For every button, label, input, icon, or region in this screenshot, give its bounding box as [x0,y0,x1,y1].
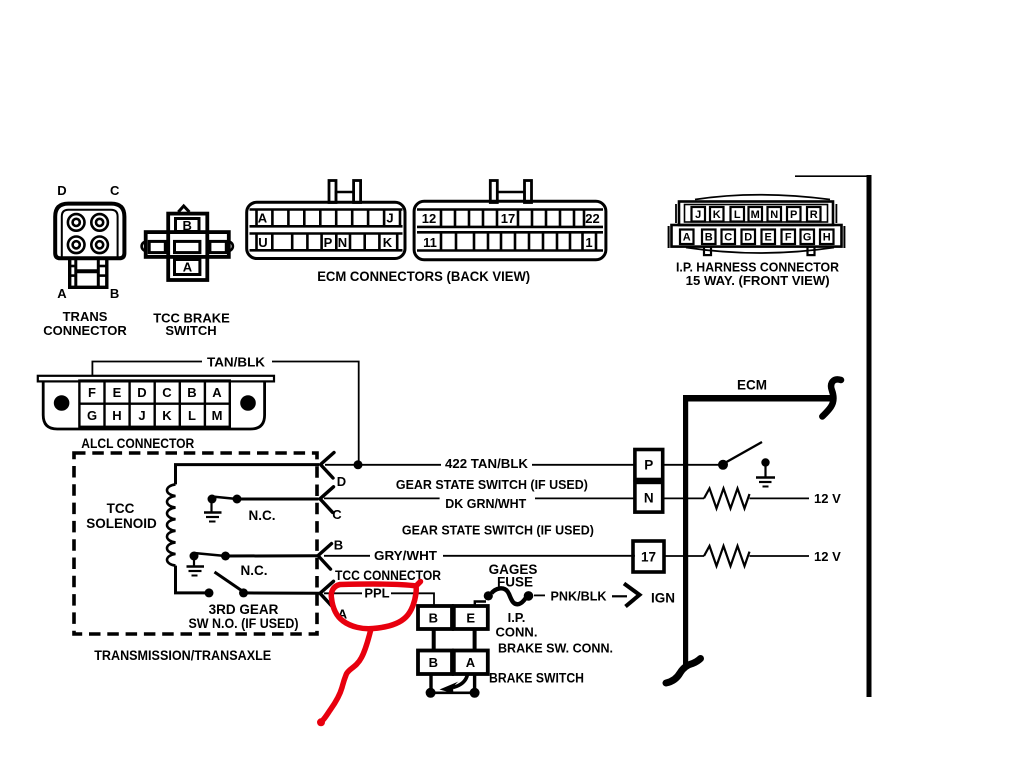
svg-text:BRAKE SWITCH: BRAKE SWITCH [489,670,584,685]
svg-text:12: 12 [422,211,436,226]
svg-text:TRANS: TRANS [63,309,108,324]
svg-text:A: A [57,286,67,301]
svg-text:M: M [751,209,760,221]
svg-text:D: D [137,385,146,400]
svg-text:GEAR STATE SWITCH (IF USED): GEAR STATE SWITCH (IF USED) [396,477,588,492]
svg-text:N: N [770,209,778,221]
svg-text:R: R [810,209,818,221]
svg-text:J: J [138,408,145,423]
svg-text:I.P.: I.P. [508,610,526,625]
svg-text:TCC CONNECTOR: TCC CONNECTOR [335,568,441,583]
svg-text:K: K [162,408,172,423]
svg-text:D: D [744,232,752,244]
svg-text:GRY/WHT: GRY/WHT [374,548,437,563]
svg-text:IGN: IGN [651,590,675,605]
svg-text:D: D [337,474,346,489]
svg-text:F: F [785,232,792,244]
svg-text:M: M [212,408,223,423]
svg-text:12 V: 12 V [814,549,841,564]
svg-text:B: B [429,611,438,626]
svg-text:B: B [429,655,438,670]
svg-text:C: C [724,232,732,244]
svg-text:K: K [383,235,393,250]
svg-text:C: C [332,507,342,522]
svg-text:B: B [110,286,119,301]
svg-text:3RD GEAR: 3RD GEAR [209,602,279,617]
svg-text:J: J [695,209,701,221]
svg-text:15 WAY. (FRONT VIEW): 15 WAY. (FRONT VIEW) [686,273,830,288]
svg-text:A: A [683,232,691,244]
svg-text:17: 17 [641,550,656,565]
svg-text:CONN.: CONN. [496,624,538,639]
svg-text:11: 11 [423,235,437,250]
svg-text:B: B [334,537,343,552]
svg-text:12 V: 12 V [814,491,841,506]
svg-text:A: A [183,260,193,275]
svg-text:P: P [790,209,797,221]
svg-text:F: F [88,385,96,400]
svg-text:N: N [338,235,347,250]
svg-text:G: G [87,408,97,423]
svg-text:N.C.: N.C. [241,563,268,578]
svg-text:K: K [713,209,721,221]
svg-text:A: A [212,385,222,400]
svg-text:TAN/BLK: TAN/BLK [207,354,266,369]
svg-text:P: P [324,235,333,250]
svg-text:H: H [823,232,831,244]
svg-text:U: U [258,235,267,250]
svg-text:N: N [644,490,654,505]
svg-text:SWITCH: SWITCH [165,323,216,338]
svg-text:TCC: TCC [107,501,135,516]
svg-text:D: D [57,183,66,198]
svg-text:BRAKE SW. CONN.: BRAKE SW. CONN. [498,640,613,655]
svg-text:H: H [112,408,121,423]
svg-text:DK GRN/WHT: DK GRN/WHT [445,496,526,511]
svg-text:B: B [183,218,192,233]
svg-text:ECM CONNECTORS (BACK VIEW): ECM CONNECTORS (BACK VIEW) [317,269,530,284]
svg-text:J: J [386,211,393,226]
svg-text:C: C [162,385,172,400]
svg-text:ECM: ECM [737,378,767,393]
svg-text:1: 1 [585,235,592,250]
svg-text:P: P [644,458,653,473]
svg-text:SOLENOID: SOLENOID [86,516,157,531]
svg-text:G: G [803,232,812,244]
svg-text:CONNECTOR: CONNECTOR [43,323,127,338]
svg-text:L: L [188,408,196,423]
svg-text:E: E [466,611,475,626]
svg-text:B: B [187,385,196,400]
svg-text:E: E [113,385,122,400]
svg-text:17: 17 [501,211,515,226]
svg-text:B: B [705,232,713,244]
svg-text:N.C.: N.C. [249,508,276,523]
svg-text:22: 22 [585,211,599,226]
svg-text:C: C [110,183,120,198]
svg-text:PPL: PPL [364,586,389,601]
svg-text:A: A [258,211,268,226]
svg-text:422 TAN/BLK: 422 TAN/BLK [445,456,529,471]
svg-text:L: L [734,209,741,221]
svg-text:E: E [765,232,772,244]
svg-text:GEAR STATE SWITCH (IF USED): GEAR STATE SWITCH (IF USED) [402,522,594,537]
svg-text:ALCL CONNECTOR: ALCL CONNECTOR [81,436,194,451]
svg-text:TRANSMISSION/TRANSAXLE: TRANSMISSION/TRANSAXLE [94,648,271,663]
svg-text:PNK/BLK: PNK/BLK [551,589,608,604]
svg-text:SW N.O. (IF USED): SW N.O. (IF USED) [189,616,299,631]
svg-text:A: A [466,655,476,670]
